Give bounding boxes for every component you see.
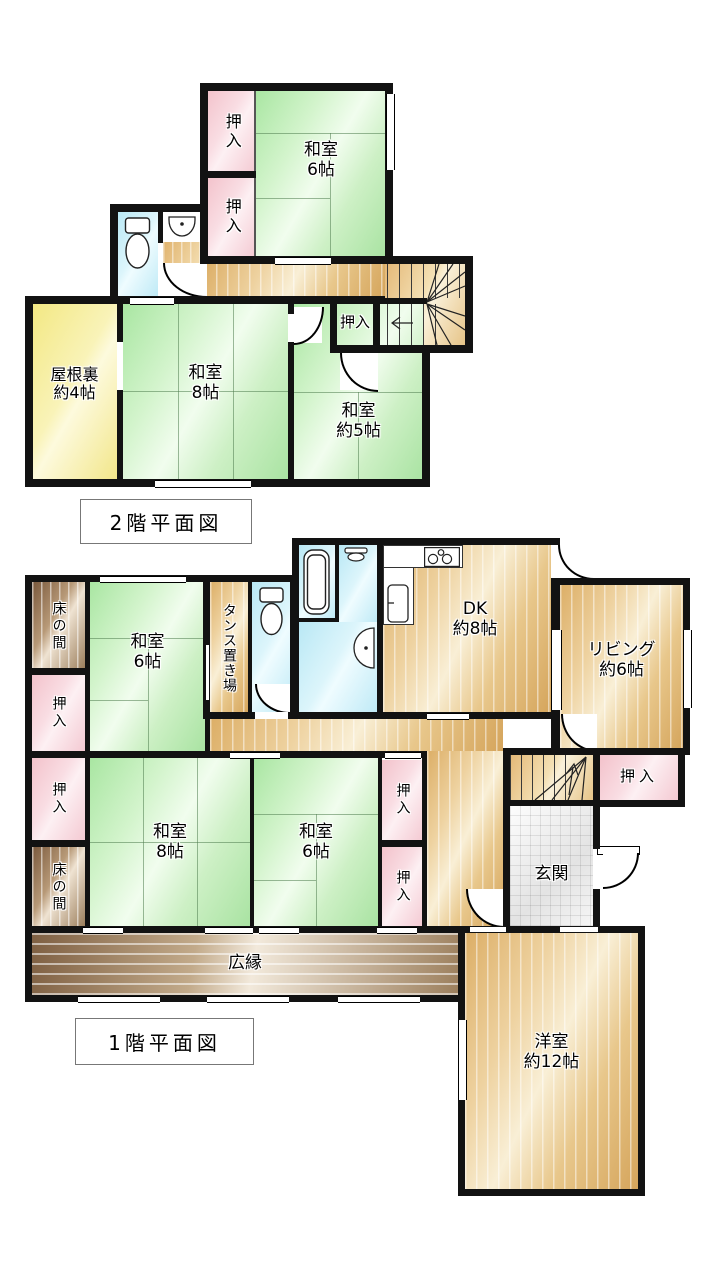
- opening: [255, 712, 288, 719]
- wall: [553, 578, 690, 585]
- window: [78, 996, 160, 1003]
- wall: [25, 751, 427, 758]
- label-2f-yaneura: 屋根裏 約4帖: [32, 360, 117, 408]
- wall: [294, 618, 339, 622]
- wall: [378, 840, 427, 847]
- wall: [458, 1189, 645, 1196]
- sliding-door: [230, 752, 280, 759]
- window: [207, 996, 289, 1003]
- label-1f-dk: DK 約8帖: [415, 596, 535, 644]
- label-2f-closet-upper: 押入: [207, 96, 256, 168]
- stove-icon: [424, 547, 460, 567]
- kitchen-sink-icon: [387, 584, 409, 623]
- window: [155, 480, 251, 488]
- wall: [203, 575, 299, 582]
- room-2f-wash-counter: [163, 242, 200, 263]
- stairs-1f-fan-and-arrow-icon: [510, 755, 593, 800]
- corridor-1f: [210, 718, 503, 751]
- caption-2f: 2階平面図: [80, 499, 252, 544]
- wall: [378, 256, 473, 264]
- label-2f-washitsu6: 和室 6帖: [256, 136, 386, 186]
- washlet-icon: [344, 547, 368, 562]
- sliding-door: [205, 927, 253, 934]
- floor-plan-canvas: 押入 押入 和室 6帖 押入 屋根裏 約4帖 和室 8帖 和室 約5帖 2階平面…: [0, 0, 720, 1280]
- opening: [206, 645, 209, 700]
- tatami-line: [254, 880, 316, 881]
- wall: [551, 578, 560, 630]
- label-1f-tansu: タンス置き場: [210, 590, 248, 706]
- window: [385, 752, 421, 759]
- wall: [288, 304, 294, 314]
- hallway-2f: [205, 263, 385, 296]
- wall: [373, 304, 380, 345]
- wall: [292, 538, 558, 545]
- caption-1f: 1階平面図: [75, 1018, 254, 1065]
- wall: [503, 800, 600, 806]
- label-1f-hiroen: 広縁: [32, 946, 458, 982]
- window: [338, 996, 420, 1003]
- label-1f-genkan: 玄関: [510, 860, 593, 890]
- wall: [158, 212, 163, 243]
- label-1f-closet-left-lower: 押入: [32, 764, 85, 834]
- wall: [465, 256, 473, 353]
- tatami-line: [256, 133, 386, 134]
- wall: [207, 171, 256, 178]
- label-1f-closet-right-upper: 押入: [382, 766, 423, 834]
- wall: [503, 748, 510, 933]
- wall: [32, 668, 85, 675]
- sliding-door: [130, 297, 174, 305]
- window: [683, 630, 692, 708]
- wall: [248, 582, 252, 712]
- label-1f-closet-left-upper: 押入: [32, 680, 85, 745]
- wall: [25, 575, 32, 1002]
- stairs-2f-fan-and-arrow-icon: [385, 264, 465, 345]
- wall: [25, 296, 385, 304]
- wall: [110, 204, 118, 304]
- label-1f-washitsu6-upper: 和室 6帖: [90, 628, 205, 678]
- opening: [560, 927, 598, 932]
- wall: [200, 83, 393, 91]
- wall: [678, 748, 685, 807]
- label-2f-closet-lower: 押入: [207, 182, 256, 252]
- wall: [378, 345, 473, 353]
- sliding-door: [377, 927, 417, 934]
- wall: [683, 585, 690, 630]
- wall: [32, 840, 85, 847]
- washbasin-icon: [167, 214, 197, 240]
- toilet-icon: [123, 216, 152, 272]
- label-1f-closet-stairs: 押入: [600, 763, 678, 791]
- label-1f-closet-right-lower: 押入: [382, 853, 423, 920]
- wall: [117, 304, 123, 342]
- wall: [330, 304, 337, 345]
- tatami-line: [90, 700, 148, 701]
- wall: [422, 345, 430, 487]
- label-1f-tokonoma-lower: 床の間: [32, 852, 85, 922]
- toilet-icon: [258, 586, 285, 638]
- label-1f-living: リビング 約6帖: [560, 636, 683, 686]
- wall: [110, 204, 208, 212]
- wall: [330, 345, 380, 353]
- wall: [593, 806, 600, 849]
- sliding-door: [83, 927, 123, 934]
- wall: [335, 545, 339, 620]
- bathtub-icon: [303, 549, 330, 615]
- wall: [551, 538, 560, 545]
- window: [386, 94, 395, 170]
- label-1f-washitsu6-lower: 和室 6帖: [254, 818, 378, 868]
- window: [427, 713, 469, 720]
- tatami-line: [256, 198, 330, 199]
- label-2f-washitsu5: 和室 約5帖: [294, 398, 423, 446]
- wall: [593, 748, 600, 806]
- washbasin-icon: [352, 626, 376, 670]
- wall: [593, 800, 685, 807]
- label-1f-tokonoma-upper: 床の間: [32, 590, 85, 662]
- opening: [470, 927, 506, 932]
- door-arc-1f-dk-living: [558, 545, 594, 580]
- window: [100, 576, 186, 583]
- door-arc-1f-entrance: [603, 853, 639, 889]
- wall: [503, 748, 600, 755]
- label-1f-youshitsu: 洋室 約12帖: [465, 1028, 638, 1078]
- wall: [638, 926, 645, 1196]
- wall: [290, 582, 299, 712]
- label-2f-closet-stairs: 押入: [337, 311, 373, 335]
- label-2f-washitsu8: 和室 8帖: [123, 360, 288, 408]
- label-1f-washitsu8: 和室 8帖: [90, 818, 250, 868]
- sliding-door: [259, 927, 299, 934]
- sliding-door: [275, 257, 331, 265]
